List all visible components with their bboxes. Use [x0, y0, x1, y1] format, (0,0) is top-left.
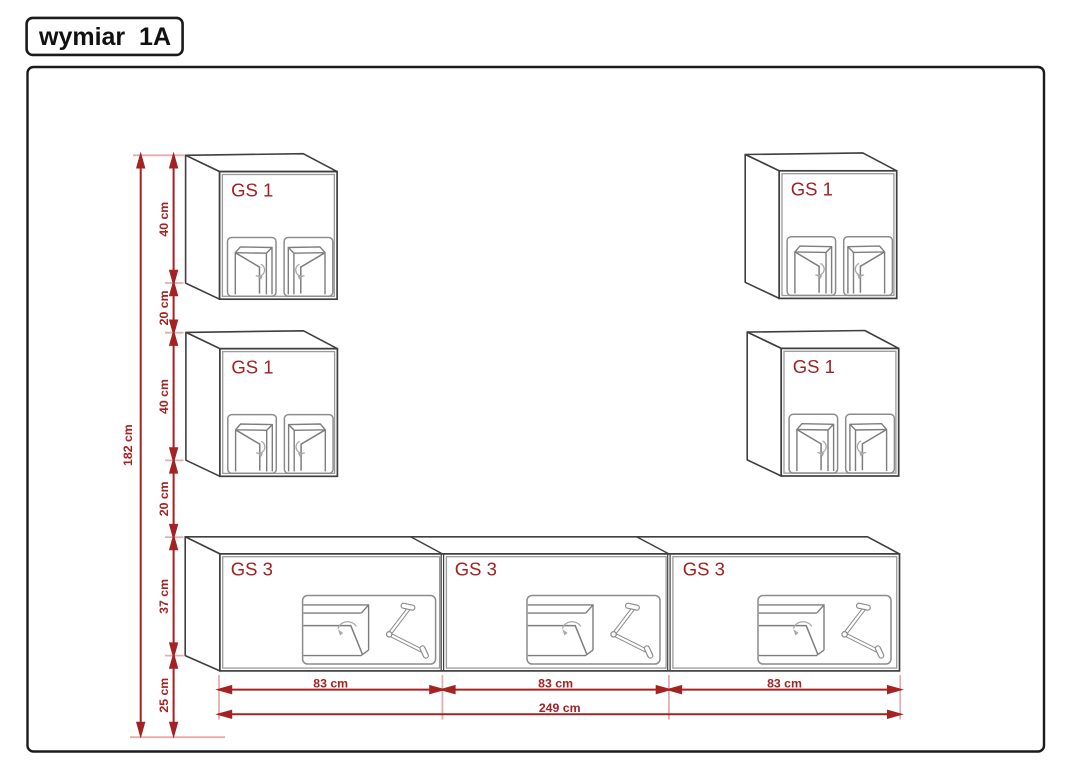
svg-text:25 cm: 25 cm: [157, 678, 171, 713]
svg-text:182 cm: 182 cm: [121, 424, 135, 466]
svg-text:83 cm: 83 cm: [538, 676, 573, 690]
svg-text:83 cm: 83 cm: [313, 676, 348, 690]
svg-text:37 cm: 37 cm: [157, 579, 171, 614]
svg-text:GS 3: GS 3: [683, 558, 725, 579]
svg-text:GS 3: GS 3: [231, 558, 273, 579]
svg-text:40 cm: 40 cm: [157, 202, 171, 237]
svg-text:20 cm: 20 cm: [157, 290, 171, 325]
svg-text:20 cm: 20 cm: [157, 481, 171, 516]
svg-text:249 cm: 249 cm: [539, 701, 581, 715]
svg-text:GS 3: GS 3: [455, 558, 497, 579]
svg-text:83 cm: 83 cm: [767, 676, 802, 690]
svg-text:40 cm: 40 cm: [157, 379, 171, 414]
svg-text:wymiar 1A: wymiar 1A: [38, 23, 171, 51]
